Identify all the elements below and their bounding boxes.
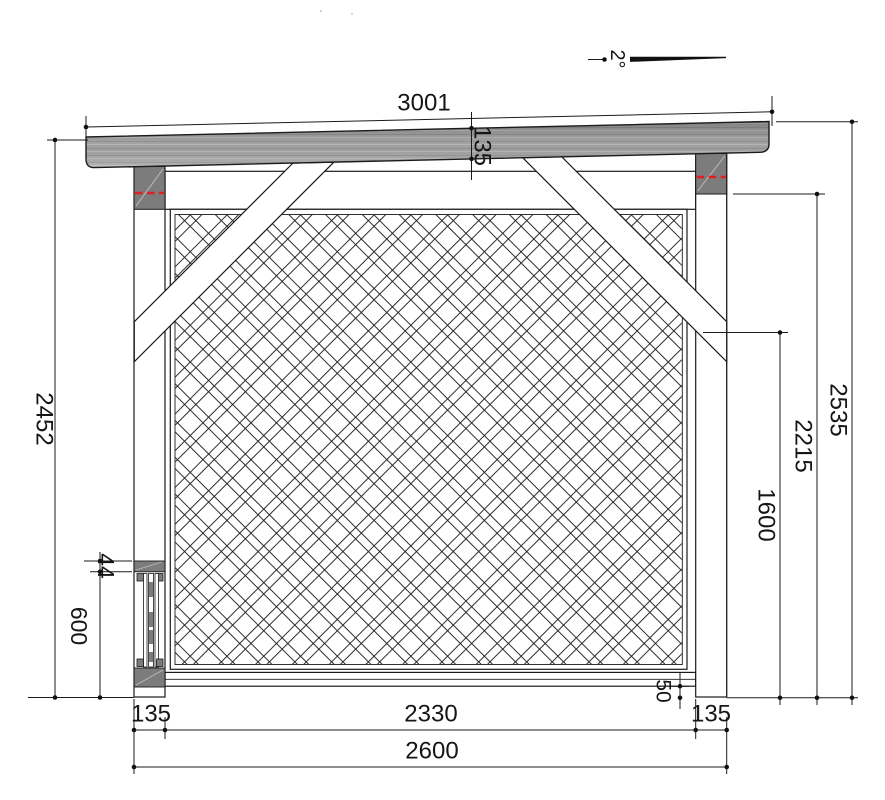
- dim-label-anchor-height: 600: [66, 607, 92, 645]
- right-post: [696, 154, 727, 698]
- dim-total-width: 2600: [132, 738, 729, 770]
- dim-label-left-post-width: 135: [131, 701, 171, 728]
- roof-beam: [86, 122, 769, 168]
- lattice-hatch-nw: [176, 215, 682, 664]
- slope-angle-label: 2°: [606, 49, 628, 68]
- drawing-canvas: 3001 135 2° 2452 44 600: [0, 0, 885, 800]
- dim-anchor: 44 600: [66, 552, 132, 700]
- dim-label-right-post-height: 2215: [790, 419, 817, 472]
- roof-slope-annotation: 2°: [588, 49, 726, 68]
- elevation-drawing: 3001 135 2° 2452 44 600: [0, 0, 885, 800]
- dim-label-roof-length: 3001: [397, 90, 450, 117]
- lattice-panel: [170, 209, 687, 669]
- paper-speck: [320, 10, 322, 12]
- bottom-sill: [165, 672, 696, 686]
- dim-label-right-post-width: 135: [691, 701, 731, 728]
- dim-label-roof-beam-height: 135: [469, 126, 496, 166]
- dim-label-total-width: 2600: [405, 738, 458, 765]
- dim-label-right-total-height: 2535: [825, 383, 852, 436]
- slope-wedge: [630, 57, 726, 62]
- dim-label-clear-span: 2330: [404, 701, 457, 728]
- dim-label-right-brace-height: 1600: [753, 488, 780, 541]
- dim-label-anchor-plate: 44: [93, 553, 119, 579]
- header-beam: [165, 171, 696, 209]
- dim-label-bottom-gap: 50: [652, 679, 675, 702]
- anchor-blade-left: [144, 574, 148, 668]
- paper-speck: [351, 13, 353, 15]
- dim-roof-beam-height: 135: [469, 112, 496, 180]
- anchor-blade-right: [155, 574, 159, 668]
- dim-label-left-total-height: 2452: [31, 392, 58, 445]
